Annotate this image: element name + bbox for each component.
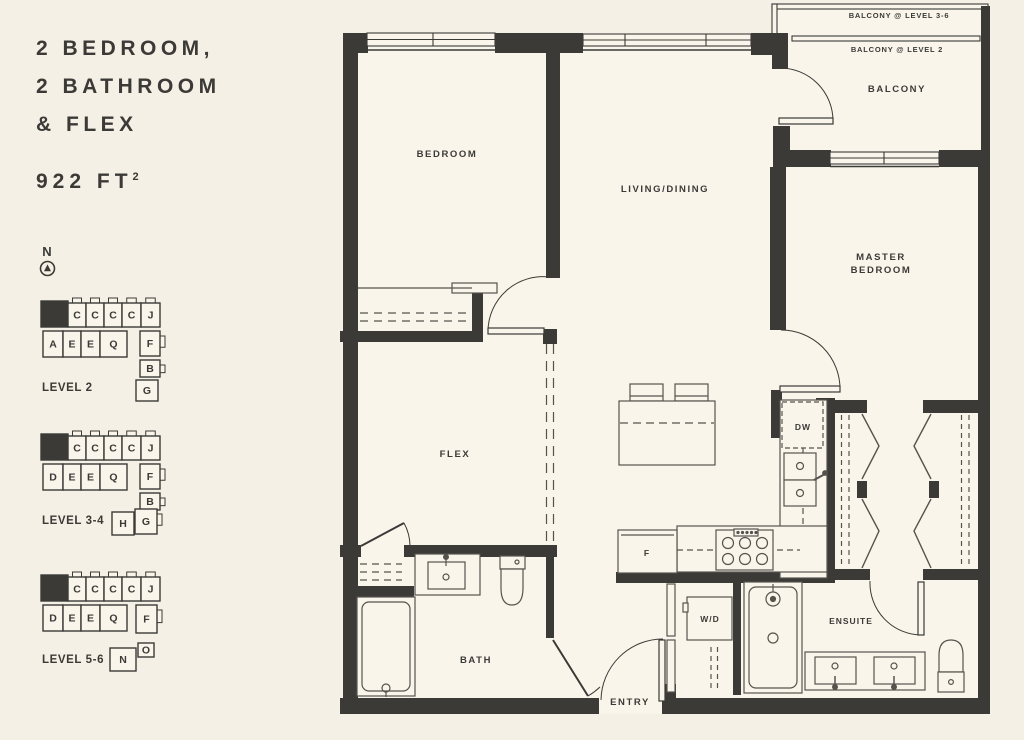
keyplan-unit-letter: C xyxy=(91,310,99,322)
keyplan-unit-letter: C xyxy=(128,310,136,322)
keyplan-level-label: LEVEL 3-4 xyxy=(42,515,104,527)
keyplan-unit-letter: C xyxy=(109,443,117,455)
keyplan-unit-letter: B xyxy=(146,496,154,508)
keyplan-unit-letter: C xyxy=(109,584,117,596)
keyplan-unit-letter: Q xyxy=(109,339,117,351)
keyplan-unit-letter: C xyxy=(73,310,81,322)
keyplan-level-2: LCCCCJDEEQFBHGLEVEL 3-4 xyxy=(41,431,165,535)
keyplan-unit-letter: C xyxy=(91,443,99,455)
keyplan-unit-letter: H xyxy=(119,518,127,530)
stove xyxy=(716,529,773,570)
keyplan-unit-letter: G xyxy=(142,516,150,528)
keyplan-unit-letter: J xyxy=(148,443,154,455)
keyplan-unit-letter: C xyxy=(128,443,136,455)
keyplan-unit-letter: O xyxy=(142,645,150,657)
bath-label: BATH xyxy=(460,655,492,666)
keyplan-unit-letter: E xyxy=(87,339,94,351)
keyplan-unit-letter: Q xyxy=(109,472,117,484)
master-label-line2: BEDROOM xyxy=(851,265,912,276)
keyplan-unit-letter: L xyxy=(51,309,58,321)
ensuite-toilet xyxy=(938,640,964,692)
keyplan-unit-letter: E xyxy=(68,339,75,351)
flex-label: FLEX xyxy=(440,449,471,460)
dw-label: DW xyxy=(795,422,811,432)
keyplan-unit-letter: E xyxy=(87,613,94,625)
keyplan-unit-letter: B xyxy=(146,363,154,375)
keyplan-unit-letter: D xyxy=(49,613,57,625)
keyplan-unit-letter: L xyxy=(51,583,58,595)
bath-tub xyxy=(357,597,415,697)
balcony-level2-label: BALCONY @ LEVEL 2 xyxy=(851,45,943,54)
ensuite-tub xyxy=(744,582,802,693)
ensuite-label: ENSUITE xyxy=(829,616,873,626)
bath-toilet xyxy=(500,556,525,605)
entry-label: ENTRY xyxy=(610,697,650,708)
keyplans: LCCCCJAEEQFBGLEVEL 2LCCCCJDEEQFBHGLEVEL … xyxy=(41,298,165,671)
keyplan-level-label: LEVEL 2 xyxy=(42,382,93,394)
keyplan-unit-letter: D xyxy=(49,472,57,484)
keyplan-unit-letter: E xyxy=(68,472,75,484)
bedroom-label: BEDROOM xyxy=(417,149,478,160)
keyplan-unit-letter: A xyxy=(49,339,57,351)
keyplan-level-label: LEVEL 5-6 xyxy=(42,654,104,666)
master-window xyxy=(830,152,939,167)
keyplan-unit-letter: F xyxy=(147,338,154,350)
keyplan-level-3: LCCCCJDEEQFONLEVEL 5-6 xyxy=(41,572,162,671)
keyplan-unit-letter: F xyxy=(143,614,150,626)
balcony-level36-label: BALCONY @ LEVEL 3-6 xyxy=(849,11,950,20)
floorplan-page: 2 BEDROOM, 2 BATHROOM & FLEX 922 FT2 N xyxy=(0,0,1024,740)
keyplan-unit-letter: J xyxy=(148,584,154,596)
wd-label: W/D xyxy=(700,614,720,624)
keyplan-unit-letter: G xyxy=(143,385,151,397)
bath-vanity xyxy=(415,554,480,595)
keyplan-unit-letter: C xyxy=(109,310,117,322)
keyplan-unit-letter: L xyxy=(51,442,58,454)
keyplan-level-1: LCCCCJAEEQFBGLEVEL 2 xyxy=(41,298,165,401)
keyplan-unit-letter: C xyxy=(73,443,81,455)
master-label-line1: MASTER xyxy=(856,252,906,263)
keyplan-unit-letter: J xyxy=(148,310,154,322)
balcony-label: BALCONY xyxy=(868,84,926,95)
keyplan-unit-letter: C xyxy=(91,584,99,596)
keyplan-unit-letter: F xyxy=(147,471,154,483)
keyplan-unit-letter: Q xyxy=(109,613,117,625)
floor-plan: BEDROOM LIVING/DINING MASTER BEDROOM BAL… xyxy=(0,0,1024,740)
keyplan-unit-letter: N xyxy=(119,654,127,666)
ensuite-vanity xyxy=(805,652,925,690)
keyplan-unit-letter: C xyxy=(128,584,136,596)
keyplan-unit-letter: C xyxy=(73,584,81,596)
keyplan-unit-letter: E xyxy=(87,472,94,484)
keyplan-unit-letter: E xyxy=(68,613,75,625)
living-dining-label: LIVING/DINING xyxy=(621,184,709,195)
fridge-label: F xyxy=(644,548,650,558)
